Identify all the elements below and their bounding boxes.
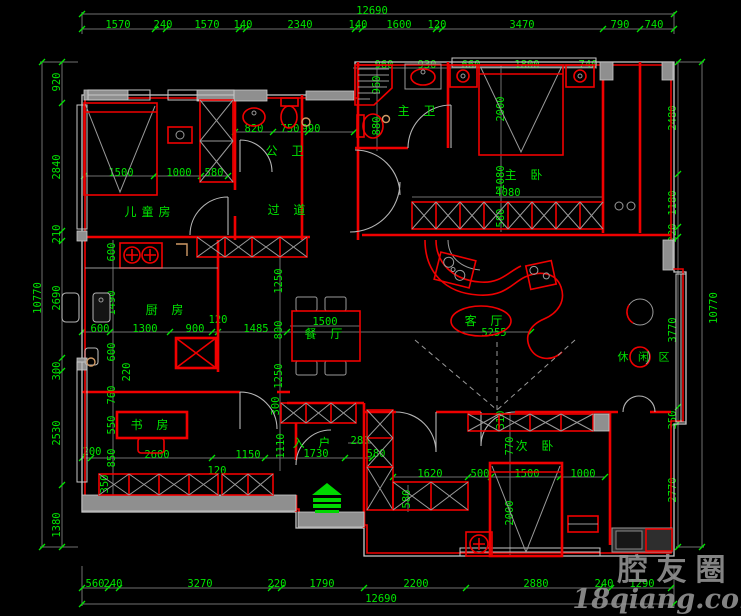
room-label-dining: 餐 厅 bbox=[305, 326, 348, 341]
dim-label: 1300 bbox=[132, 323, 157, 335]
dim-label: 1570 bbox=[194, 19, 219, 31]
master-wardrobe bbox=[412, 202, 603, 229]
dim-label: 990 bbox=[302, 123, 321, 135]
dim-label: 770 bbox=[504, 437, 516, 456]
room-labels: 儿童房 公 卫 过 道 主 卫 主 卧 厨 房 餐 厅 客 厅 休 闲 区 书 … bbox=[124, 104, 672, 453]
dim-label: 240 bbox=[154, 19, 173, 31]
dim-label: 220 bbox=[121, 363, 133, 382]
dim-label: 140 bbox=[349, 19, 368, 31]
dim-label: 1180 bbox=[667, 190, 679, 215]
dim-label: 560 bbox=[86, 578, 105, 590]
floor-plan-drawing: 12690 1570 240 1570 140 2340 140 1600 12… bbox=[0, 0, 741, 616]
dim-label: 2770 bbox=[667, 477, 679, 502]
dim-label: 12690 bbox=[356, 5, 388, 17]
dim-label: 10770 bbox=[32, 282, 44, 314]
dim-label: 1000 bbox=[166, 167, 191, 179]
dim-label: 1570 bbox=[105, 19, 130, 31]
dim-label: 600 bbox=[91, 323, 110, 335]
side-table bbox=[434, 252, 476, 288]
balcony-door bbox=[62, 293, 79, 322]
room-label-kitchen: 厨 房 bbox=[146, 302, 189, 317]
bed2-wardrobe bbox=[468, 414, 609, 431]
knobs bbox=[615, 202, 635, 210]
dresser bbox=[612, 528, 672, 552]
dim-label: 210 bbox=[51, 225, 63, 244]
dim-label: 1250 bbox=[273, 268, 285, 293]
cad-floorplan-canvas: 12690 1570 240 1570 140 2340 140 1600 12… bbox=[0, 0, 741, 616]
dim-label: 1150 bbox=[235, 449, 260, 461]
dim-label: 1790 bbox=[309, 578, 334, 590]
dim-label: 1485 bbox=[243, 323, 268, 335]
dim-label: 3770 bbox=[667, 317, 679, 342]
dim-label: 850 bbox=[106, 449, 118, 468]
dim-label: 580 bbox=[495, 209, 507, 228]
room-label-public-bath: 公 卫 bbox=[266, 144, 309, 158]
dim-label: 1620 bbox=[417, 468, 442, 480]
room-label-leisure: 休 闲 区 bbox=[618, 350, 673, 364]
room-label-master-bed: 主 卧 bbox=[505, 168, 548, 182]
dim-label: 5255 bbox=[481, 327, 506, 339]
dim-label: 900 bbox=[186, 323, 205, 335]
dim-label: 4080 bbox=[495, 187, 520, 199]
room-label-master-bath: 主 卫 bbox=[398, 104, 441, 118]
dim-label: 1110 bbox=[275, 433, 287, 458]
nightstand bbox=[568, 516, 598, 532]
dim-label: 2530 bbox=[51, 420, 63, 445]
dim-label: 600 bbox=[106, 243, 118, 262]
stove bbox=[120, 243, 162, 268]
dim-label: 2880 bbox=[523, 578, 548, 590]
dim-label: 800 bbox=[273, 321, 285, 340]
dim-label: 240 bbox=[104, 578, 123, 590]
dim-label: 2600 bbox=[144, 449, 169, 461]
kitchen-sink bbox=[93, 293, 110, 322]
watermark-brand: 腔友圈 bbox=[617, 553, 735, 588]
entry-arrow-icon bbox=[312, 483, 342, 513]
dim-label: 140 bbox=[234, 19, 253, 31]
hall-cabinet bbox=[197, 237, 307, 257]
dim-label: 960 bbox=[371, 76, 383, 95]
dim-label: 2840 bbox=[51, 154, 63, 179]
dim-label: 220 bbox=[268, 578, 287, 590]
door-arc bbox=[396, 412, 436, 452]
dim-label: 350 bbox=[667, 411, 679, 430]
dim-label: 500 bbox=[471, 468, 490, 480]
room-label-corridor: 过 道 bbox=[268, 203, 311, 217]
dim-label: 1380 bbox=[51, 512, 63, 537]
room-label-second-bed: 次 卧 bbox=[516, 439, 559, 453]
door-arc bbox=[623, 396, 655, 412]
nightstand bbox=[168, 127, 192, 143]
dim-label: 600 bbox=[106, 343, 118, 362]
counter-corner bbox=[176, 244, 187, 256]
dim-label: 1000 bbox=[570, 468, 595, 480]
dim-label: 760 bbox=[106, 386, 118, 405]
dim-label: 10770 bbox=[708, 292, 720, 324]
dim-label: 120 bbox=[428, 19, 447, 31]
interior-dimension-labels: 820 750 990 1500 1000 580 960 930 660 18… bbox=[83, 59, 598, 526]
room-label-study: 书 房 bbox=[131, 417, 174, 432]
floor-drain bbox=[383, 116, 390, 123]
dim-label: 790 bbox=[611, 19, 630, 31]
room-label-children: 儿童房 bbox=[124, 204, 175, 219]
dim-label: 12690 bbox=[365, 593, 397, 605]
door-arc bbox=[190, 197, 228, 235]
dim-label: 300 bbox=[51, 362, 63, 381]
room-label-living: 客 厅 bbox=[465, 313, 508, 328]
watermark: 腔友圈 18qiang.com bbox=[572, 553, 741, 615]
child-bed bbox=[84, 103, 157, 195]
dim-label: 3270 bbox=[187, 578, 212, 590]
dim-label: 2690 bbox=[51, 285, 63, 310]
dim-label: 3470 bbox=[509, 19, 534, 31]
dim-label: 2200 bbox=[403, 578, 428, 590]
room-label-entry: 入 户 bbox=[293, 435, 336, 450]
dim-label: 740 bbox=[645, 19, 664, 31]
dim-label: 2480 bbox=[667, 105, 679, 130]
fridge bbox=[176, 338, 216, 368]
dim-label: 920 bbox=[51, 73, 63, 92]
tv-projection-lines bbox=[415, 340, 575, 410]
master-bed bbox=[479, 65, 563, 155]
dim-label: 1250 bbox=[273, 363, 285, 388]
watermark-site: 18qiang.com bbox=[572, 584, 741, 615]
dim-label: 2340 bbox=[287, 19, 312, 31]
dim-label: 1500 bbox=[514, 468, 539, 480]
dim-label: 1600 bbox=[386, 19, 411, 31]
study-wardrobe bbox=[99, 474, 273, 495]
fixture bbox=[85, 348, 98, 366]
